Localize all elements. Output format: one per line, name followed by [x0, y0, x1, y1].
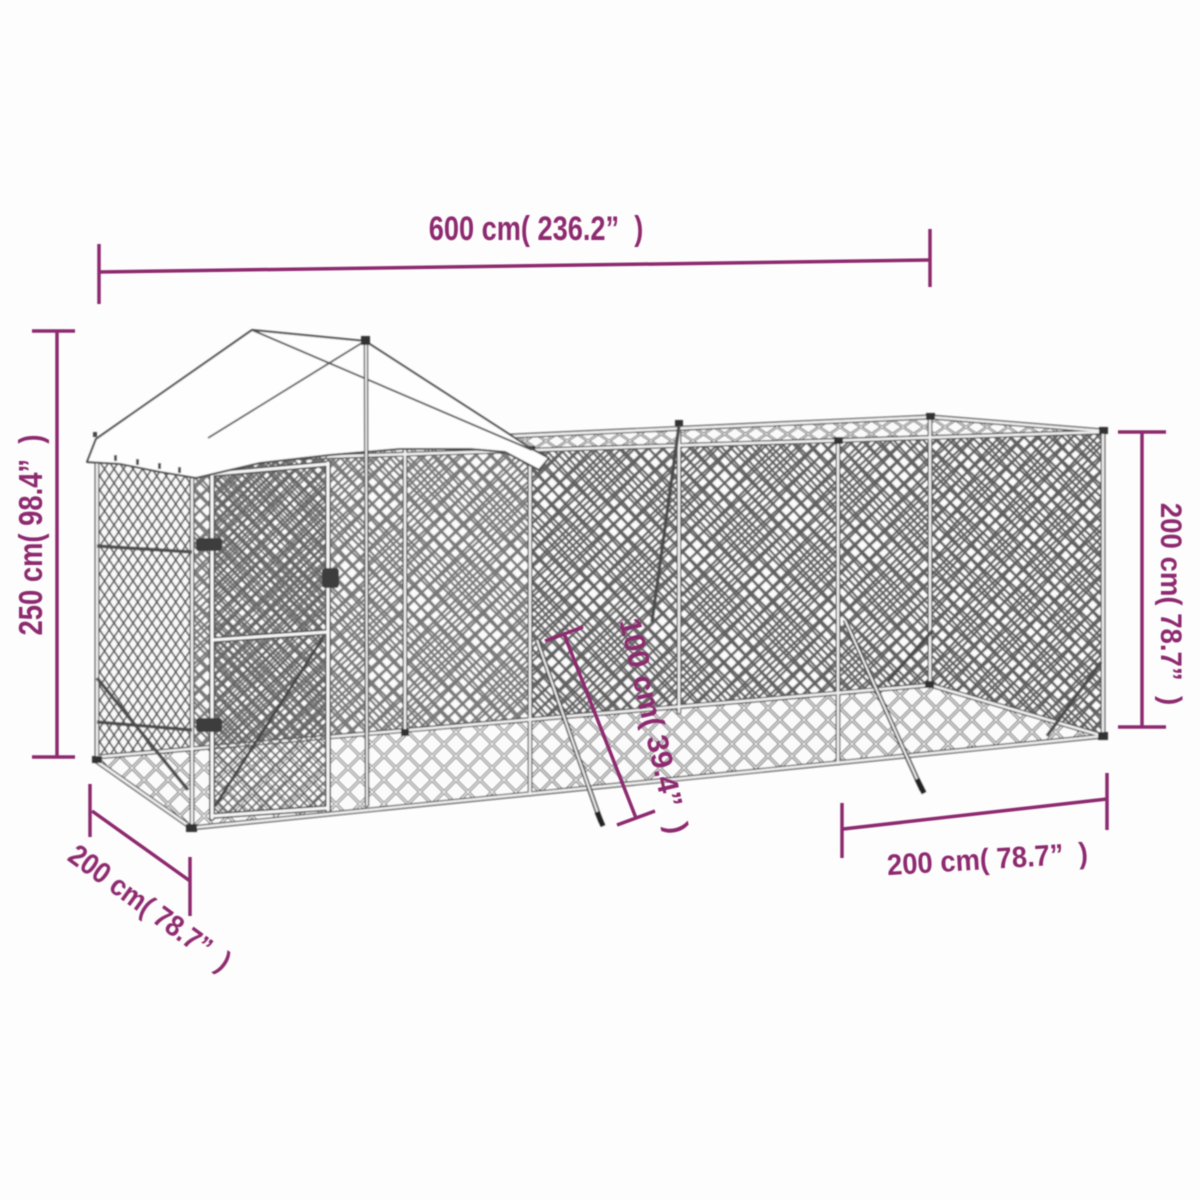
svg-text:200 cm( 78.7” ): 200 cm( 78.7” ): [1154, 503, 1187, 705]
svg-text:600 cm( 236.2” ): 600 cm( 236.2” ): [429, 209, 644, 248]
svg-text:250 cm( 98.4” ): 250 cm( 98.4” ): [14, 435, 50, 636]
